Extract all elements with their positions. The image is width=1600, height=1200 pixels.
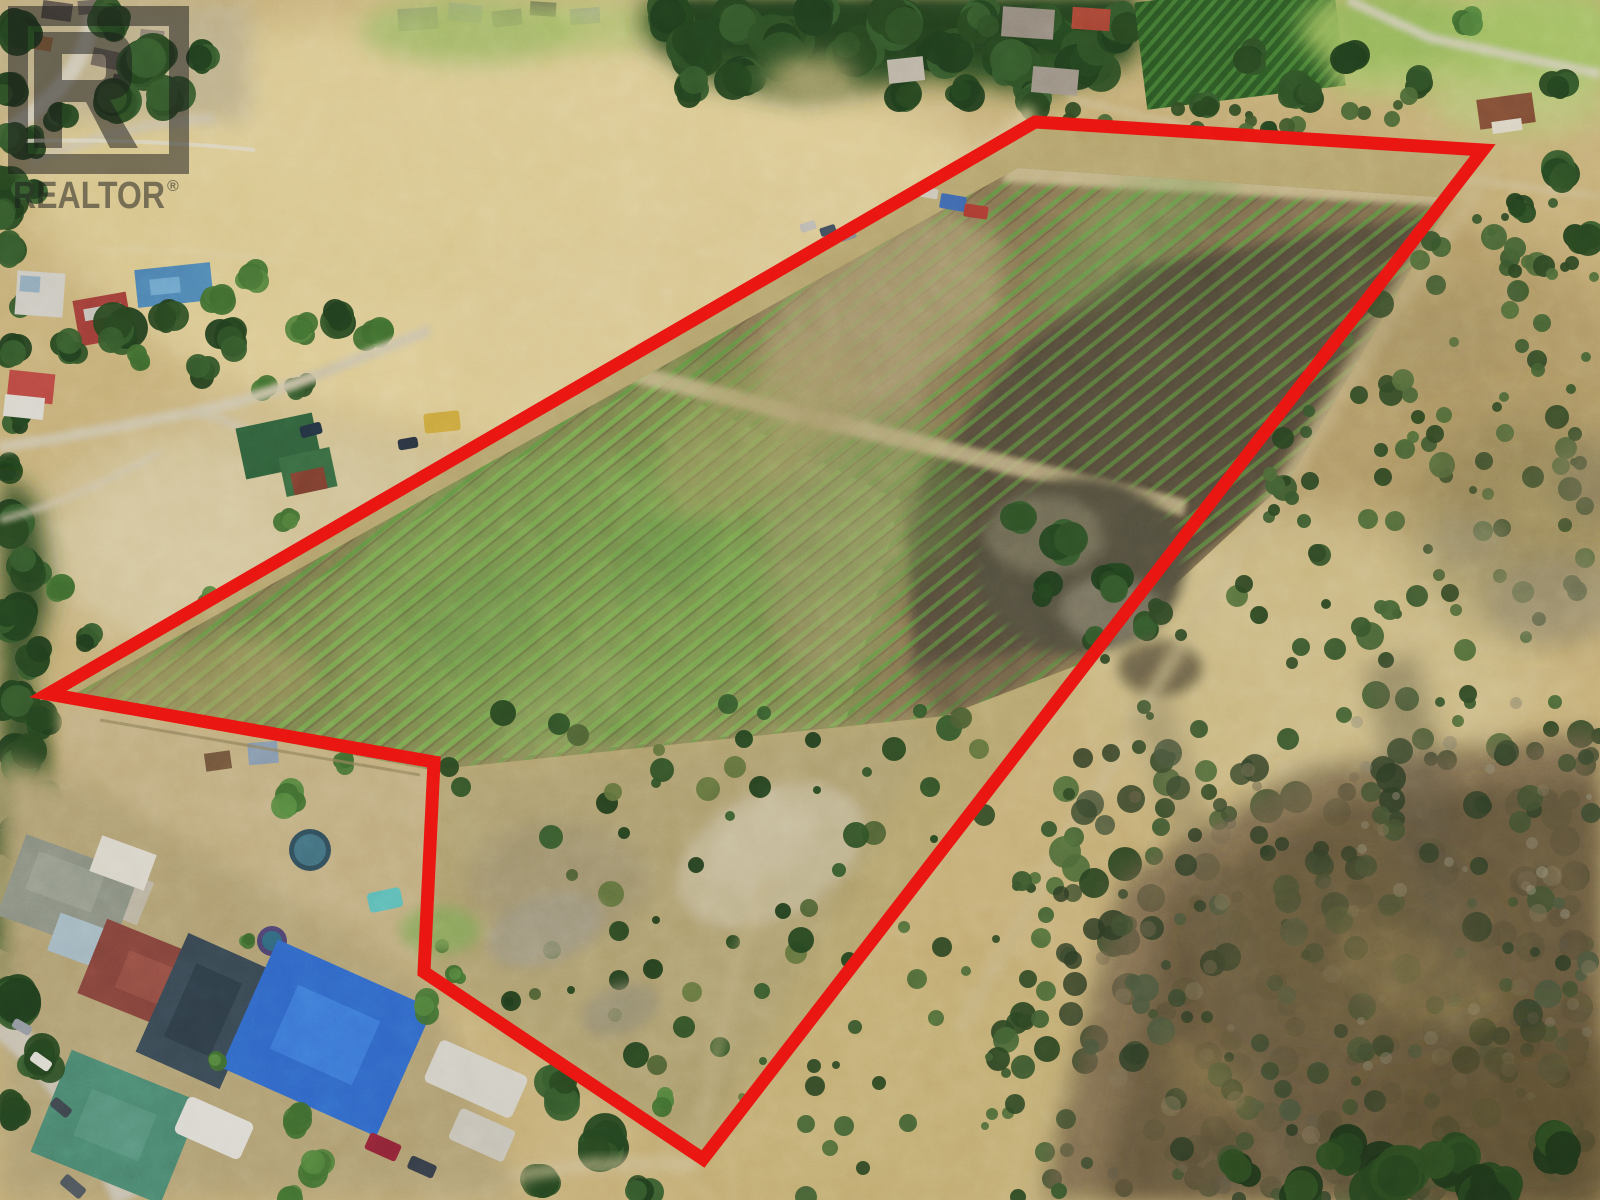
svg-text:REALTOR: REALTOR — [13, 175, 165, 217]
svg-text:®: ® — [167, 178, 179, 195]
